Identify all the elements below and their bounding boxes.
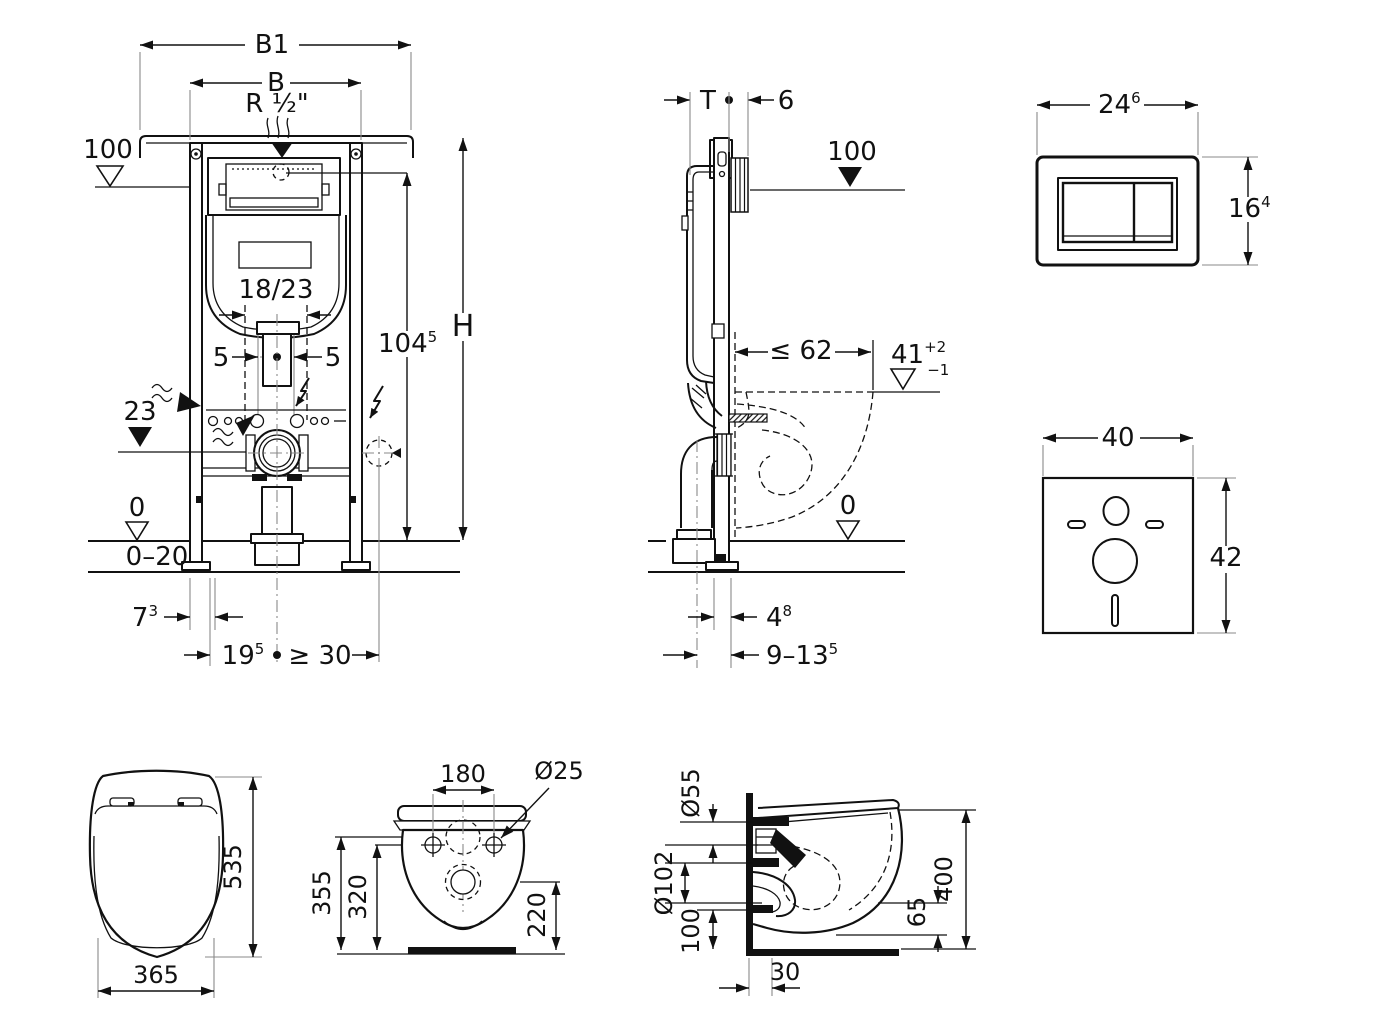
floor-bar bbox=[408, 947, 516, 954]
dim-7-3: 73 bbox=[132, 602, 158, 633]
level-100-label: 100 bbox=[83, 135, 133, 165]
level-marker-23-icon bbox=[128, 427, 152, 447]
flush-bend-cap bbox=[257, 322, 299, 334]
dim-dia-102: Ø102 bbox=[650, 851, 678, 916]
dim-365: 365 bbox=[133, 961, 179, 989]
wall-bar bbox=[746, 793, 753, 956]
dim-t: T bbox=[699, 86, 716, 116]
bowl-side-view: Ø55 Ø102 100 30 65 400 bbox=[650, 768, 976, 996]
dim-30: 30 bbox=[770, 958, 801, 986]
technical-drawing-page: B1 B R ½" 100 18/23 5 5 23 1045 H 0 0–20… bbox=[0, 0, 1400, 1034]
level-marker-100-icon bbox=[838, 167, 862, 187]
level-23-label: 23 bbox=[123, 397, 156, 427]
frame-rail-profile bbox=[714, 138, 729, 562]
flush-plate-view: 246 164 bbox=[1037, 89, 1278, 265]
outlet-hole bbox=[451, 870, 475, 894]
dim-le-62: ≤ 62 bbox=[769, 336, 832, 366]
dim-b1: B1 bbox=[255, 30, 289, 60]
dim-dia-55: Ø55 bbox=[677, 768, 705, 817]
frame-side-view: T 6 100 ≤ 62 41+2−1 0 48 9–135 bbox=[648, 86, 949, 671]
bowl-profile bbox=[753, 808, 902, 933]
dim-4-8: 48 bbox=[766, 602, 792, 633]
frame-foot bbox=[706, 562, 738, 570]
dim-5-left: 5 bbox=[213, 343, 230, 373]
wall-mounting-plate bbox=[731, 158, 748, 212]
dim-100: 100 bbox=[677, 908, 705, 954]
outlet-box bbox=[673, 539, 715, 563]
bowl-front-view: 180 Ø25 355 320 220 bbox=[308, 757, 584, 954]
dim-220: 220 bbox=[523, 892, 551, 938]
mounting-hardware bbox=[753, 817, 806, 916]
sound-insulation-mat-view: 40 42 bbox=[1043, 423, 1246, 633]
dim-ge-30: ≥ 30 bbox=[288, 641, 351, 671]
dim-dia-25: Ø25 bbox=[534, 757, 583, 785]
dim-65: 65 bbox=[903, 897, 931, 928]
water-supply-icon bbox=[152, 385, 255, 446]
electrical-bolt-icon bbox=[296, 378, 309, 406]
level-0-label: 0 bbox=[129, 493, 146, 523]
level-marker-41-icon bbox=[891, 369, 915, 389]
dim-320: 320 bbox=[344, 874, 372, 920]
installation-drawing-canvas: B1 B R ½" 100 18/23 5 5 23 1045 H 0 0–20… bbox=[0, 0, 1400, 1034]
flush-buttons bbox=[1063, 183, 1172, 242]
electrical-connection-icon bbox=[362, 386, 401, 470]
level-0-label: 0 bbox=[840, 491, 857, 521]
level-marker-0-icon bbox=[126, 522, 148, 540]
dim-40: 40 bbox=[1101, 423, 1134, 453]
dim-400: 400 bbox=[930, 856, 958, 902]
dim-19-5: 195 bbox=[222, 640, 265, 671]
dim-0-20: 0–20 bbox=[126, 542, 189, 572]
dim-535: 535 bbox=[219, 844, 247, 890]
frame-front-view: B1 B R ½" 100 18/23 5 5 23 1045 H 0 0–20… bbox=[83, 30, 478, 671]
dim-355: 355 bbox=[308, 870, 336, 916]
dim-r-half: R ½" bbox=[245, 89, 309, 119]
dim-h: H bbox=[452, 309, 475, 344]
dim-5-right: 5 bbox=[325, 343, 342, 373]
wc-connector bbox=[717, 434, 731, 476]
floor-bar bbox=[753, 949, 899, 956]
dim-9-13-5: 9–135 bbox=[766, 640, 838, 671]
frame-right-foot bbox=[342, 562, 370, 570]
cistern-profile bbox=[687, 166, 714, 383]
seat-lid-outline bbox=[90, 771, 223, 957]
dim-6: 6 bbox=[778, 86, 795, 116]
seat-lid-profile bbox=[758, 800, 899, 818]
seat-top-view: 535 365 bbox=[90, 771, 262, 998]
level-100-label: 100 bbox=[827, 137, 877, 167]
level-marker-100-icon bbox=[97, 166, 123, 186]
level-marker-0-icon bbox=[837, 521, 859, 539]
seat-lid-edge bbox=[398, 806, 526, 821]
dim-18-23: 18/23 bbox=[239, 275, 314, 305]
dim-180: 180 bbox=[440, 760, 486, 788]
dim-42: 42 bbox=[1209, 543, 1242, 573]
